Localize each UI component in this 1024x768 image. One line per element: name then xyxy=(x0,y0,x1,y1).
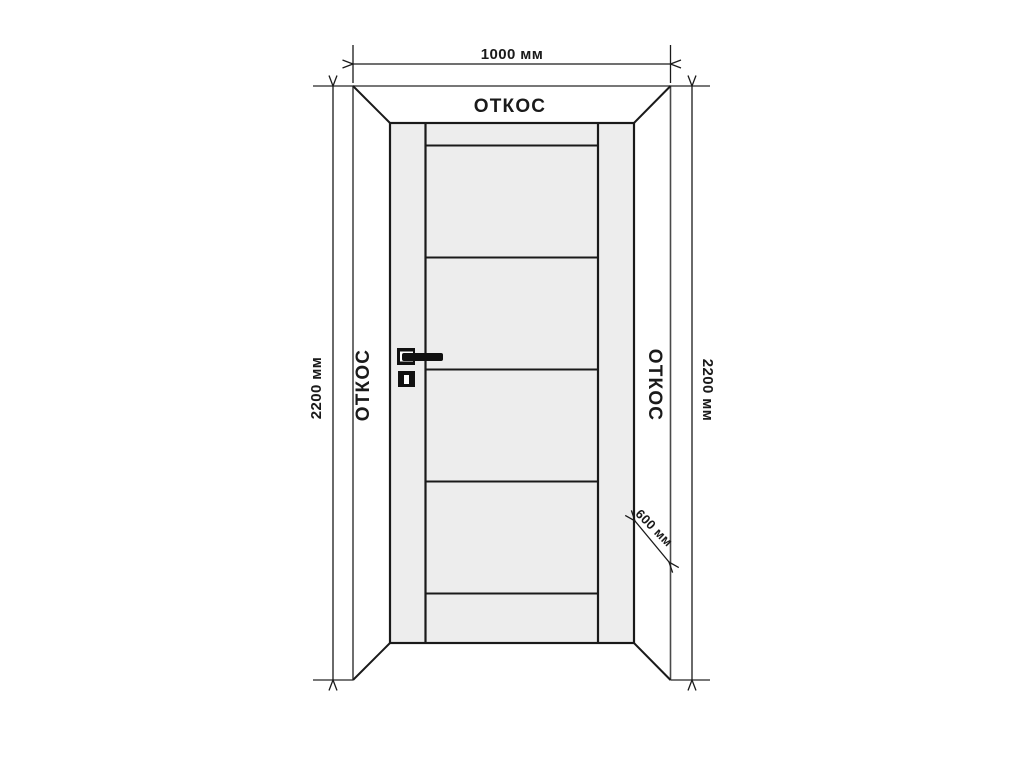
dimension-opening-width: 1000 мм xyxy=(353,45,671,83)
dimension-jamb-depth: 600 мм xyxy=(632,506,675,562)
jamb-diagonal-top-right xyxy=(634,86,671,123)
jamb-diagonal-bottom-left xyxy=(353,643,390,680)
depth-dimension-label: 600 мм xyxy=(632,506,675,549)
jamb-label-top: ОТКОС xyxy=(474,96,546,117)
door-installation-diagram: 1000 мм 2200 мм 2200 мм 600 мм ОТКОС ОТК… xyxy=(0,0,1024,768)
door-handle-lever-icon xyxy=(402,353,443,361)
height-left-dimension-label: 2200 мм xyxy=(308,357,325,420)
keyhole-slot-icon xyxy=(404,375,409,384)
jamb-diagonal-top-left xyxy=(353,86,390,123)
diagram-canvas: 1000 мм 2200 мм 2200 мм 600 мм ОТКОС ОТК… xyxy=(0,0,1024,768)
height-right-dimension-label: 2200 мм xyxy=(699,359,716,422)
width-dimension-label: 1000 мм xyxy=(481,46,544,63)
jamb-label-left: ОТКОС xyxy=(353,349,374,421)
jamb-label-right: ОТКОС xyxy=(644,349,665,421)
dimension-opening-height-left: 2200 мм xyxy=(308,86,333,680)
dimension-opening-height-right: 2200 мм xyxy=(692,86,716,680)
jamb-diagonal-bottom-right xyxy=(634,643,671,680)
door-frame xyxy=(390,123,634,643)
